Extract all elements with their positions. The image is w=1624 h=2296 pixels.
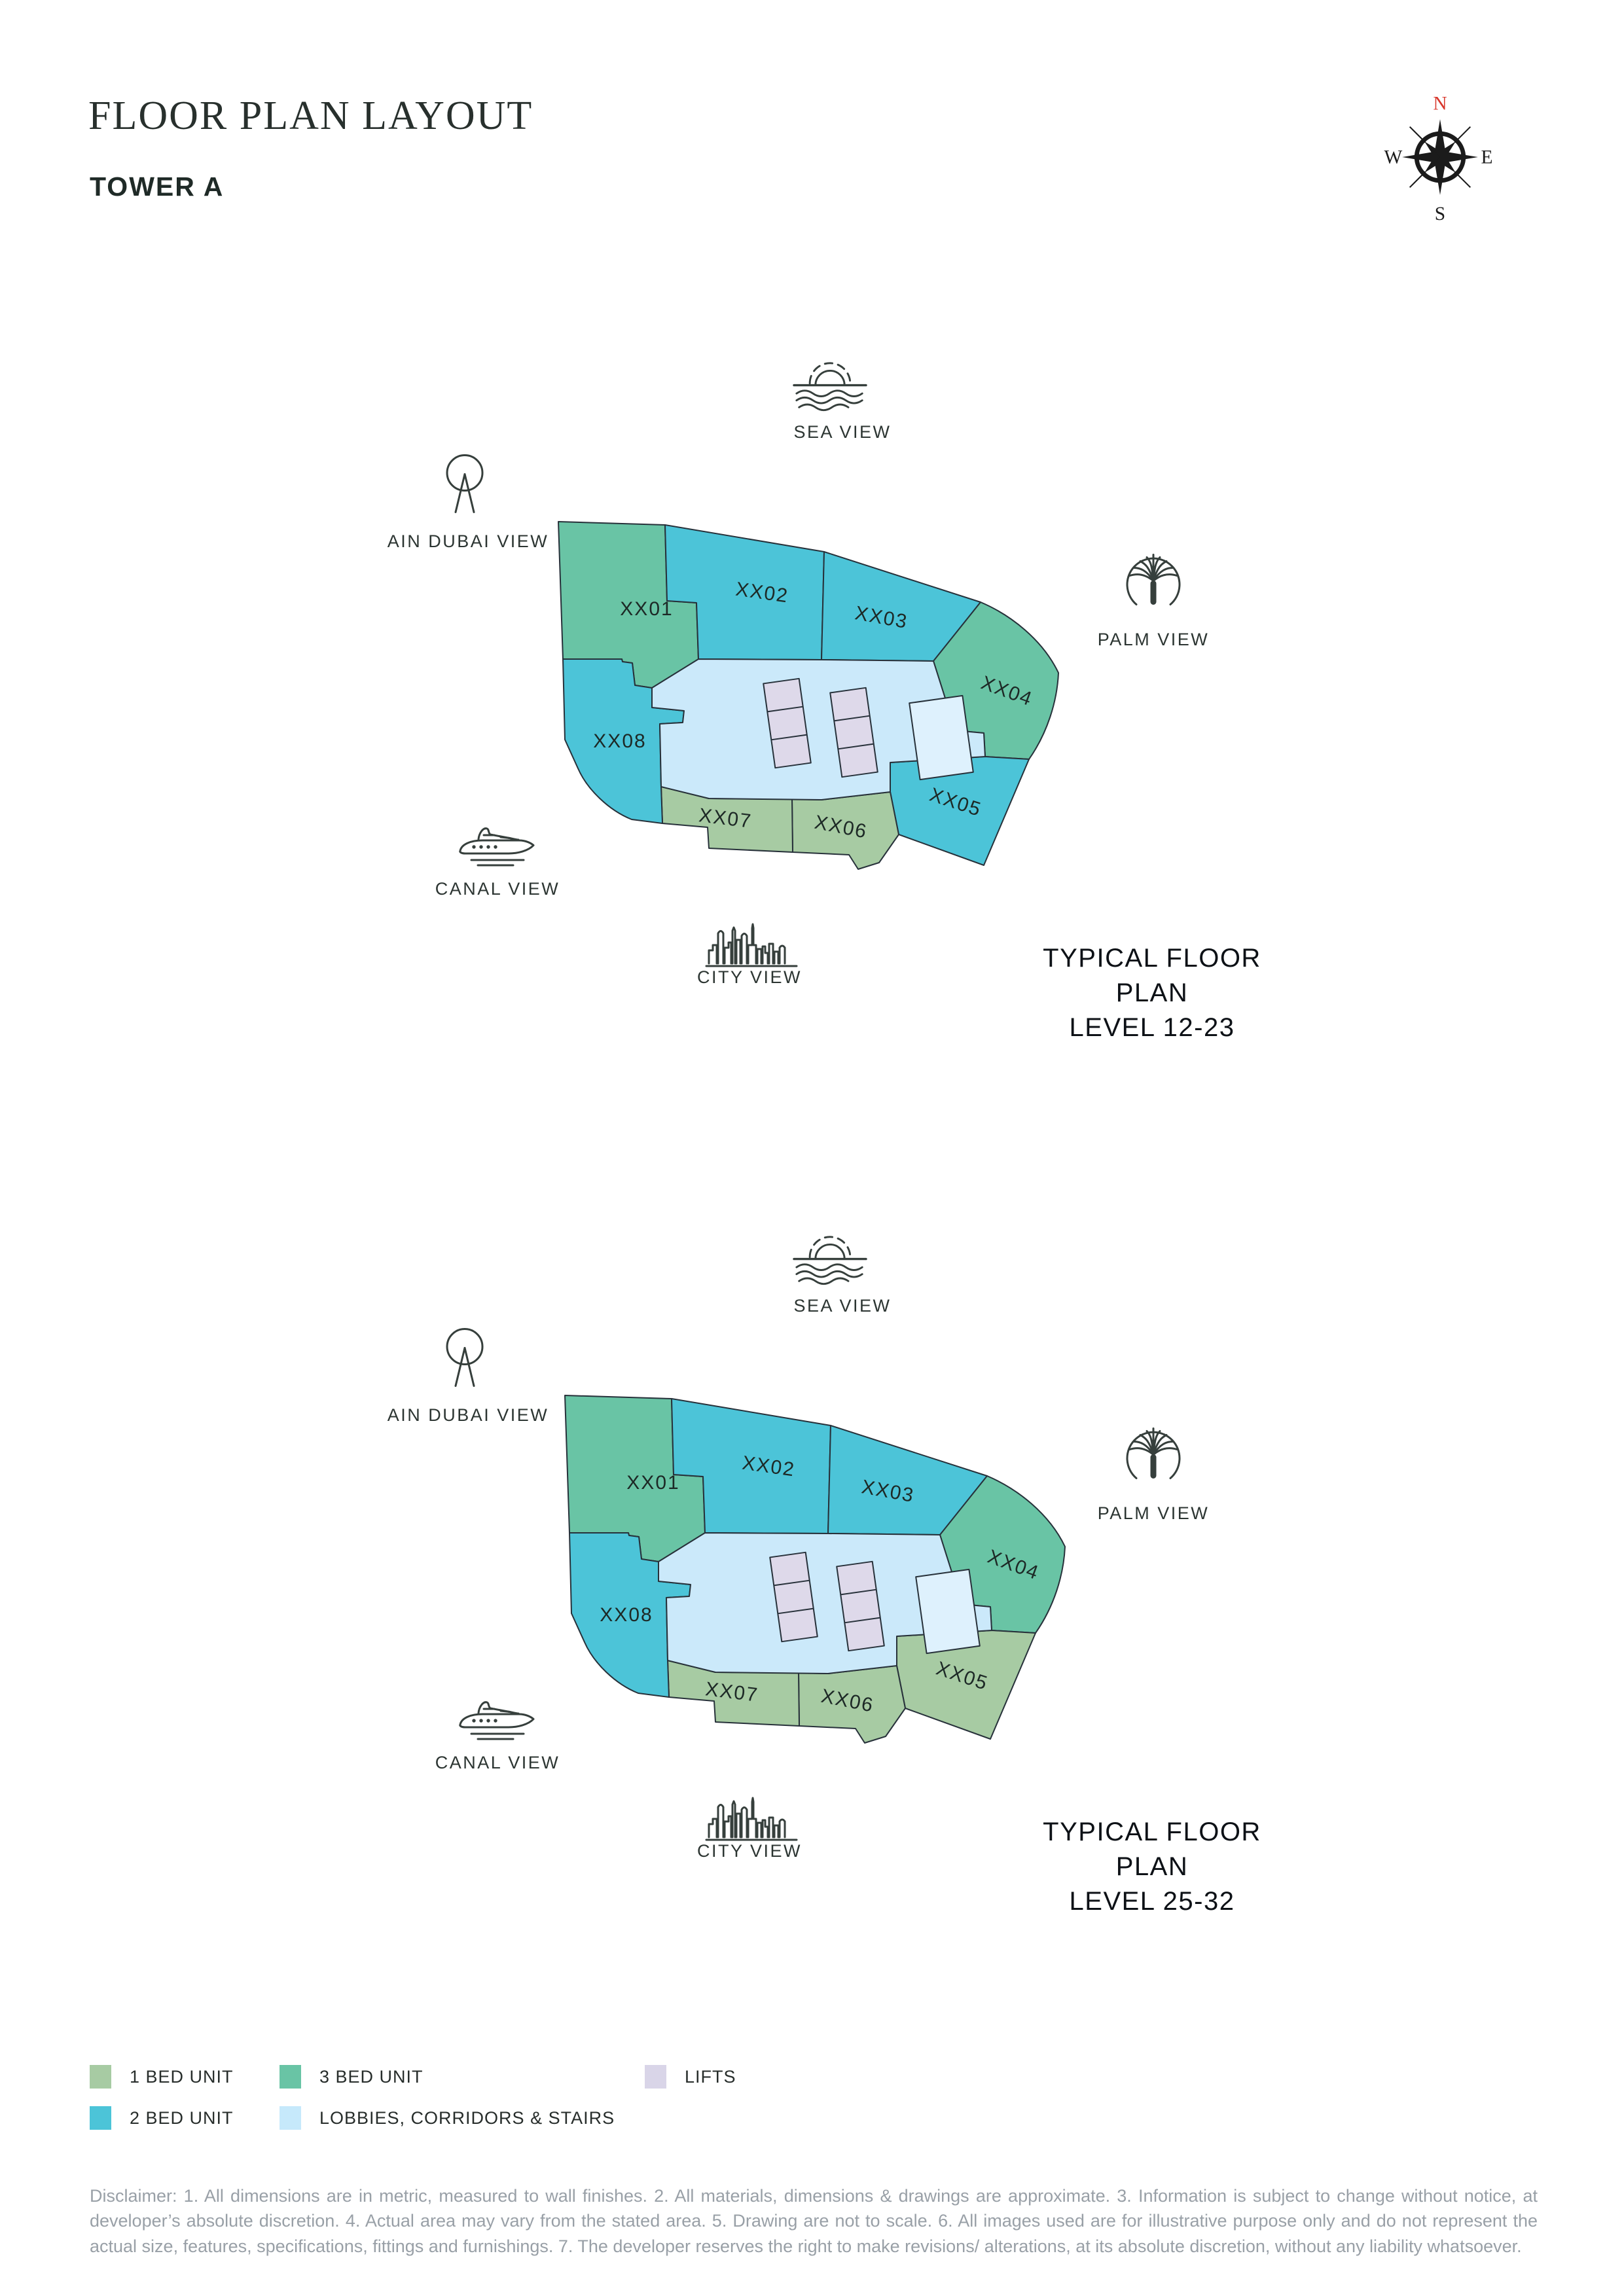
canal-view-icon [454, 813, 542, 873]
legend-label: 2 BED UNIT [130, 2108, 234, 2128]
legend-label: LIFTS [685, 2067, 736, 2087]
page-title: FLOOR PLAN LAYOUT [88, 93, 533, 139]
ain-dubai-view-label: AIN DUBAI VIEW [367, 1405, 569, 1426]
ain-dubai-view-label: AIN DUBAI VIEW [367, 531, 569, 552]
floor-plan-level-12-23: XX01 XX02 XX03 XX04 XX05 XX06 XX07 XX08 [553, 504, 1070, 884]
compass-west-label: W [1384, 147, 1403, 168]
palm-view-label: PALM VIEW [1052, 630, 1255, 650]
plan-caption-level-12-23: TYPICAL FLOOR PLAN LEVEL 12-23 [1011, 941, 1293, 1045]
legend-label: 3 BED UNIT [319, 2067, 424, 2087]
palm-view-icon [1114, 1420, 1193, 1490]
sea-view-label: SEA VIEW [741, 1296, 944, 1316]
legend-item-lobbies: LOBBIES, CORRIDORS & STAIRS [280, 2106, 615, 2130]
legend-swatch-lobbies [280, 2106, 301, 2130]
unit-label: XX08 [600, 1604, 653, 1626]
legend-swatch-3-bed [280, 2065, 301, 2089]
caption-line1: TYPICAL FLOOR PLAN [1011, 941, 1293, 1011]
ain-dubai-view-icon [425, 446, 504, 516]
legend-item-2-bed: 2 BED UNIT [90, 2106, 234, 2130]
stair-core [916, 1570, 980, 1653]
palm-view-icon [1114, 547, 1193, 616]
caption-line2: LEVEL 12-23 [1011, 1011, 1293, 1045]
palm-view-label: PALM VIEW [1052, 1503, 1255, 1524]
legend-swatch-lifts [645, 2065, 666, 2089]
legend-swatch-1-bed [90, 2065, 111, 2089]
legend-item-3-bed: 3 BED UNIT [280, 2065, 424, 2089]
floor-plan-level-25-32: XX01 XX02 XX03 XX04 XX05 XX06 XX07 XX08 [560, 1378, 1077, 1757]
city-view-label: CITY VIEW [648, 1841, 851, 1861]
legend-item-1-bed: 1 BED UNIT [90, 2065, 234, 2089]
city-view-label: CITY VIEW [648, 967, 851, 988]
legend-item-lifts: LIFTS [645, 2065, 736, 2089]
compass-north-label: N [1433, 93, 1447, 114]
caption-line2: LEVEL 25-32 [1011, 1884, 1293, 1919]
compass-east-label: E [1481, 147, 1493, 168]
plan-caption-level-25-32: TYPICAL FLOOR PLAN LEVEL 25-32 [1011, 1815, 1293, 1919]
compass-rose-icon: N W E S [1378, 92, 1502, 223]
tower-name: TOWER A [90, 171, 224, 202]
city-view-icon [702, 911, 801, 973]
unit-label: XX01 [620, 598, 673, 620]
unit-label: XX08 [593, 730, 646, 752]
disclaimer-text: Disclaimer: 1. All dimensions are in met… [90, 2183, 1538, 2259]
sea-view-label: SEA VIEW [741, 422, 944, 442]
legend-label: 1 BED UNIT [130, 2067, 234, 2087]
sea-view-icon [789, 1234, 871, 1287]
compass-south-label: S [1435, 204, 1445, 223]
unit-label: XX01 [626, 1472, 679, 1494]
canal-view-icon [454, 1687, 542, 1747]
city-view-icon [702, 1785, 801, 1847]
legend-label: LOBBIES, CORRIDORS & STAIRS [319, 2108, 615, 2128]
stair-core [909, 696, 973, 780]
ain-dubai-view-icon [425, 1320, 504, 1390]
sea-view-icon [789, 360, 871, 414]
caption-line1: TYPICAL FLOOR PLAN [1011, 1815, 1293, 1884]
legend-swatch-2-bed [90, 2106, 111, 2130]
